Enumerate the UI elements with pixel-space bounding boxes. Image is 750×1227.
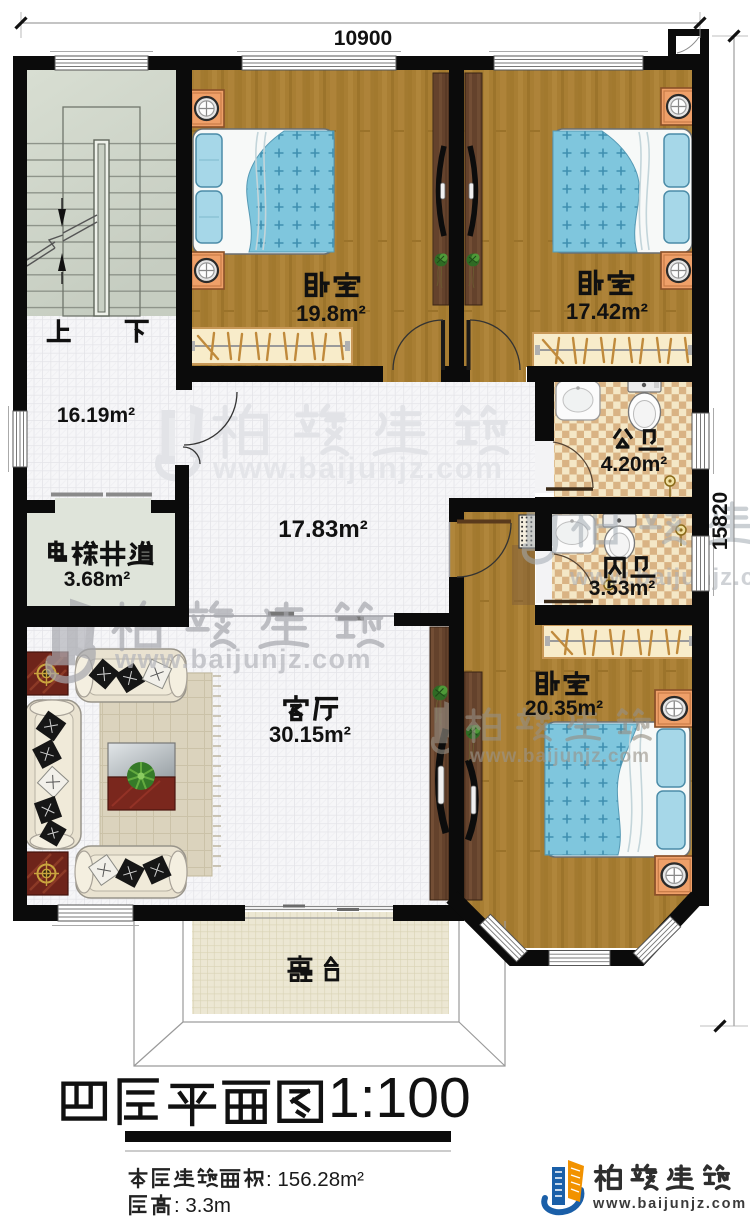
svg-text:: 3.3m: : 3.3m [174,1194,231,1217]
svg-text:30.15m²: 30.15m² [269,722,351,747]
svg-text:20.35m²: 20.35m² [525,697,603,720]
svg-text:www.baijunjz.com: www.baijunjz.com [592,1196,747,1212]
svg-text:17.42m²: 17.42m² [566,299,648,324]
svg-text:10900: 10900 [334,27,392,50]
svg-text:www.baijunjz.com: www.baijunjz.com [469,746,650,767]
svg-text:15820: 15820 [709,492,732,550]
svg-text:3.68m²: 3.68m² [64,568,131,591]
svg-text:16.19m²: 16.19m² [57,404,135,427]
svg-text:www.baijunjz.com: www.baijunjz.com [212,452,504,485]
svg-text:17.83m²: 17.83m² [278,516,367,543]
svg-text:3.53m²: 3.53m² [589,577,656,600]
svg-text:www.baijunjz.com: www.baijunjz.com [114,644,372,674]
svg-text:4.20m²: 4.20m² [601,453,668,476]
svg-text:: 156.28m²: : 156.28m² [266,1168,364,1191]
svg-text:1:100: 1:100 [328,1066,471,1130]
svg-text:19.8m²: 19.8m² [296,301,366,326]
